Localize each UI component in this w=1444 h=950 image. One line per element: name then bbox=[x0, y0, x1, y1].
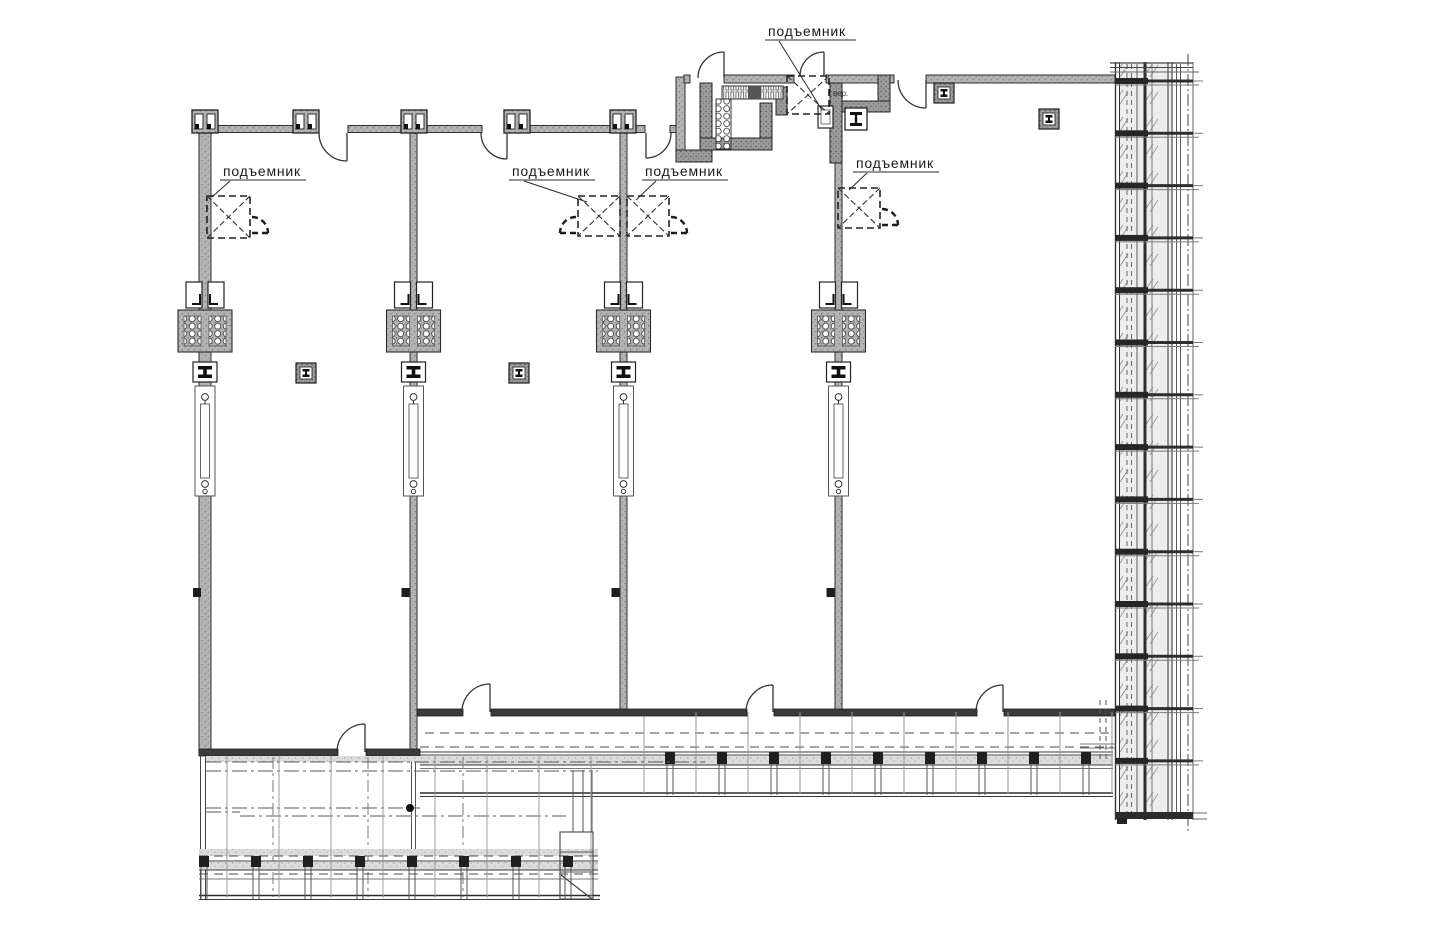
door-top-wall-3 bbox=[646, 133, 671, 158]
survey-point-dot bbox=[406, 804, 414, 812]
door-top-wall-2 bbox=[481, 133, 507, 159]
hoist-label-right-text: подъемник bbox=[856, 155, 934, 171]
hoist-shaft-mid-left bbox=[560, 196, 620, 236]
hoist-shaft-left bbox=[207, 196, 268, 238]
hoist-shaft-mid-right bbox=[627, 196, 687, 236]
door-bottom-mid-2 bbox=[746, 685, 773, 712]
door-bottom-left-room bbox=[337, 724, 365, 752]
door-bottom-mid-1 bbox=[462, 684, 490, 712]
door-top-wall-right bbox=[898, 80, 926, 108]
hoist-shaft-right bbox=[838, 188, 898, 228]
terrace-left-posts bbox=[199, 756, 591, 899]
wall-junction-details bbox=[178, 282, 866, 597]
door-bottom-mid-3 bbox=[976, 685, 1003, 712]
bottom-wall-middle-rooms bbox=[417, 709, 1115, 716]
floor-plan-svg: вер. bbox=[0, 0, 1444, 950]
terrace-left bbox=[199, 756, 705, 900]
terrace-right-posts bbox=[665, 712, 1112, 795]
curtain-wall-facade bbox=[1110, 54, 1207, 832]
door-vestibule-entry bbox=[698, 52, 724, 78]
hoist-label-left: подъемник bbox=[212, 163, 306, 197]
small-annotation: вер. bbox=[833, 89, 848, 98]
hoist-label-right: подъемник bbox=[849, 155, 939, 190]
hoist-label-left-text: подъемник bbox=[223, 163, 301, 179]
door-hoist-top bbox=[800, 52, 824, 76]
door-top-wall-1 bbox=[319, 133, 347, 161]
hoist-label-mid-right-text: подъемник bbox=[645, 163, 723, 179]
bottom-wall-left-room bbox=[199, 749, 420, 756]
hoist-label-mid-left-text: подъемник bbox=[512, 163, 590, 179]
floor-plan-canvas: вер. bbox=[0, 0, 1444, 950]
terrace-right bbox=[412, 700, 1116, 857]
hoist-label-top-text: подъемник bbox=[768, 23, 846, 39]
hoist-label-mid-right: подъемник bbox=[636, 163, 728, 200]
